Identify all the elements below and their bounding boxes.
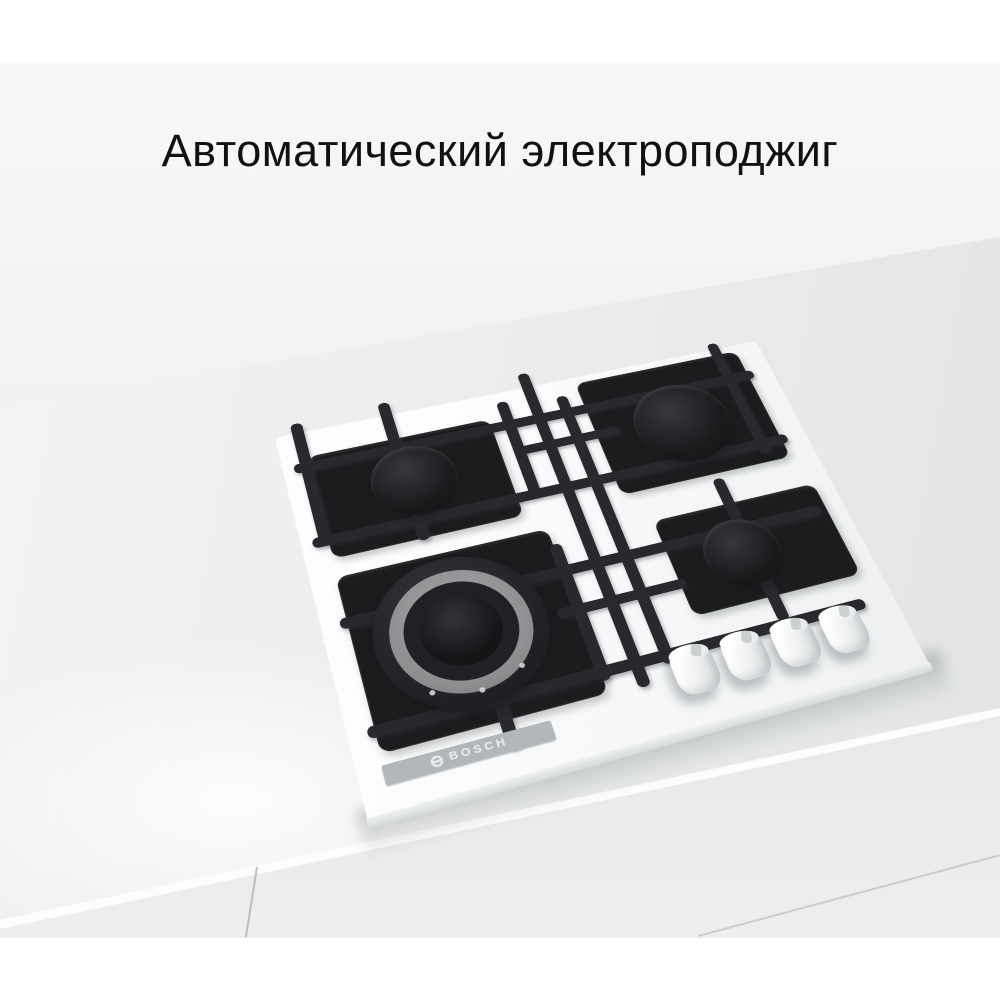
feature-title: Автоматический электроподжиг [0,124,1000,178]
control-knob-1 [666,643,726,698]
bosch-logo-text: BOSCH [448,737,510,764]
bosch-logo-icon [430,754,445,768]
control-knob-4 [815,604,875,656]
control-knob-3 [766,617,826,670]
product-image: BOSCH Автоматический электроподжиг [0,0,1000,1000]
control-knob-2 [717,630,777,684]
